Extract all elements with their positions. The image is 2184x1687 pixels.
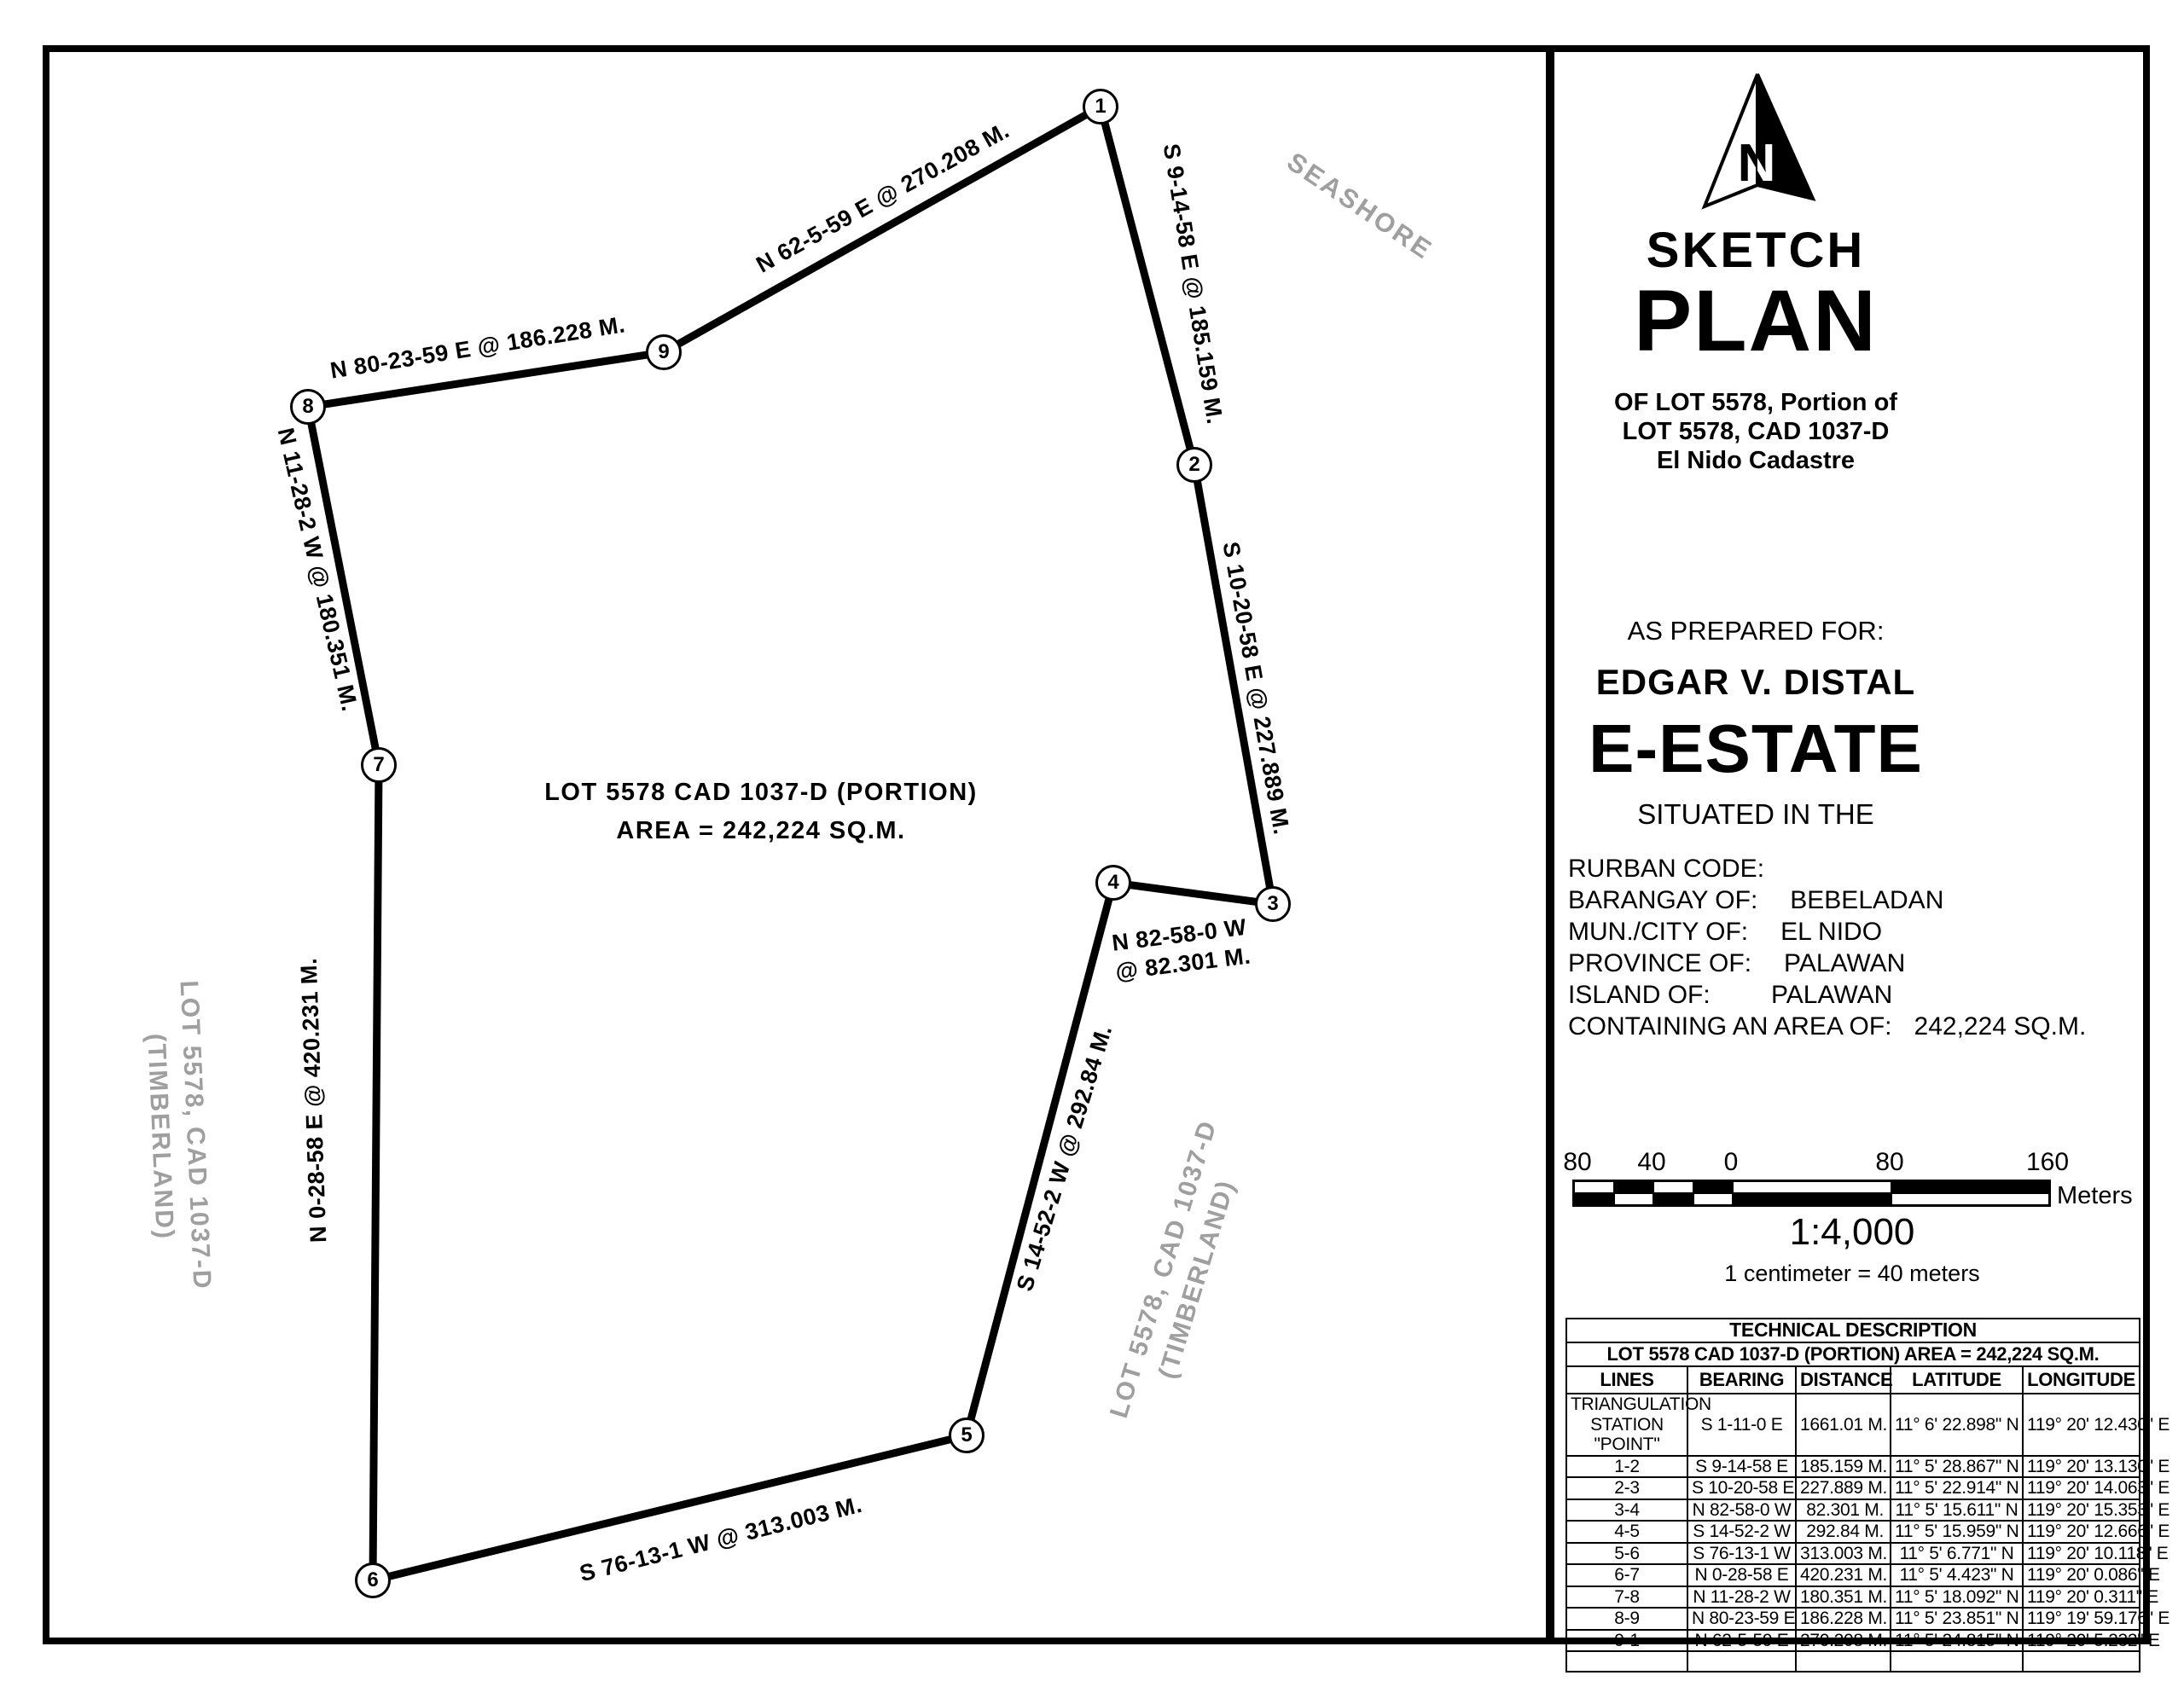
cell-bearing: N 11-28-2 W (1687, 1586, 1796, 1609)
table-row: 8-9 N 80-23-59 E 186.228 M. 11° 5' 23.85… (1566, 1608, 2140, 1630)
cell-lines: 1-2 (1566, 1456, 1687, 1478)
table-title: TECHNICAL DESCRIPTION (1566, 1319, 2140, 1342)
location-label: MUN./CITY OF: (1568, 916, 1748, 948)
location-label: PROVINCE OF: (1568, 948, 1751, 979)
subtitle-line1: OF LOT 5578, Portion of (1558, 388, 1954, 417)
cell-latitude: 11° 5' 22.914" N (1891, 1477, 2023, 1499)
cell-distance: 292.84 M. (1796, 1521, 1891, 1543)
cell-lines: 9-1 (1566, 1630, 1687, 1652)
table-row: TRIANGULATION STATION "POINT" S 1-11-0 E… (1566, 1394, 2140, 1456)
cell-distance: 227.889 M. (1796, 1477, 1891, 1499)
north-arrow-icon: N N (1699, 72, 1817, 217)
vertex-point: 5 (949, 1417, 985, 1453)
cell-latitude: 11° 5' 15.959" N (1891, 1521, 2023, 1543)
timberland-label-left: LOT 5578, CAD 1037-D (TIMBERLAND) (136, 980, 219, 1293)
cell-lines: TRIANGULATION STATION "POINT" (1566, 1394, 1687, 1456)
table-row: 1-2 S 9-14-58 E 185.159 M. 11° 5' 28.867… (1566, 1456, 2140, 1478)
cell-bearing: S 9-14-58 E (1687, 1456, 1796, 1478)
scale-unit-label: Meters (2057, 1182, 2133, 1210)
col-header-distance: DISTANCE (1796, 1366, 1891, 1394)
cell-distance: 180.351 M. (1796, 1586, 1891, 1609)
cell-lines: 8-9 (1566, 1608, 1687, 1630)
scale-tick: 80 (1875, 1148, 1903, 1177)
location-value: PALAWAN (1771, 979, 1892, 1011)
cell-bearing: N 62-5-59 E (1687, 1630, 1796, 1652)
parcel-area-label: LOT 5578 CAD 1037-D (PORTION) AREA = 242… (544, 774, 978, 850)
cell-latitude: 11° 5' 23.851" N (1891, 1608, 2023, 1630)
table-row (1566, 1651, 2140, 1672)
location-row-rurban: RURBAN CODE: (1568, 853, 2145, 884)
cell-bearing: S 10-20-58 E (1687, 1477, 1796, 1499)
location-value: BEBELADAN (1790, 884, 1943, 916)
table-row: 5-6 S 76-13-1 W 313.003 M. 11° 5' 6.771"… (1566, 1543, 2140, 1565)
cell-distance (1796, 1651, 1891, 1672)
scale-note: 1 centimeter = 40 meters (1565, 1261, 2139, 1287)
scale-bar-blocks (1572, 1180, 2051, 1207)
table-row: 3-4 N 82-58-0 W 82.301 M. 11° 5' 15.611"… (1566, 1499, 2140, 1522)
scale-tick: 0 (1724, 1148, 1739, 1177)
estate-name: E-ESTATE (1558, 710, 1954, 788)
cell-bearing: S 76-13-1 W (1687, 1543, 1796, 1565)
sketch-plan-page: 1 2 3 4 5 6 7 8 9 N 62-5-59 E @ 270.208 … (0, 0, 2184, 1687)
cell-lines: 3-4 (1566, 1499, 1687, 1522)
table-row: 9-1 N 62-5-59 E 270.208 M. 11° 5' 24.815… (1566, 1630, 2140, 1652)
location-row-area: CONTAINING AN AREA OF: 242,224 SQ.M. (1568, 1011, 2145, 1042)
location-value: 242,224 SQ.M. (1914, 1011, 2087, 1042)
vertex-point: 4 (1095, 865, 1131, 901)
cell-latitude: 11° 5' 4.423" N (1891, 1564, 2023, 1586)
subtitle-line3: El Nido Cadastre (1558, 446, 1954, 475)
table-subtitle: LOT 5578 CAD 1037-D (PORTION) AREA = 242… (1566, 1342, 2140, 1366)
location-row-island: ISLAND OF: PALAWAN (1568, 979, 2145, 1011)
cell-longitude: 119° 20' 13.130" E (2023, 1456, 2140, 1478)
cell-bearing: N 0-28-58 E (1687, 1564, 1796, 1586)
cell-distance: 420.231 M. (1796, 1564, 1891, 1586)
cell-latitude (1891, 1651, 2023, 1672)
table-row: 7-8 N 11-28-2 W 180.351 M. 11° 5' 18.092… (1566, 1586, 2140, 1609)
title-plan: PLAN (1558, 271, 1954, 371)
prepared-for-label: AS PREPARED FOR: (1558, 616, 1954, 646)
cell-lines: 5-6 (1566, 1543, 1687, 1565)
location-row-municipality: MUN./CITY OF: EL NIDO (1568, 916, 2145, 948)
location-row-province: PROVINCE OF: PALAWAN (1568, 948, 2145, 979)
cell-longitude: 119° 20' 0.311" E (2023, 1586, 2140, 1609)
col-header-latitude: LATITUDE (1891, 1366, 2023, 1394)
vertex-point: 1 (1083, 89, 1118, 125)
cell-latitude: 11° 5' 15.611" N (1891, 1499, 2023, 1522)
location-label: RURBAN CODE: (1568, 853, 1764, 884)
parcel-name: LOT 5578 CAD 1037-D (PORTION) (544, 774, 978, 812)
subtitle-line2: LOT 5578, CAD 1037-D (1558, 417, 1954, 446)
cell-longitude: 119° 20' 5.232" E (2023, 1630, 2140, 1652)
cell-longitude: 119° 20' 14.063" E (2023, 1477, 2140, 1499)
col-header-bearing: BEARING (1687, 1366, 1796, 1394)
cell-latitude: 11° 5' 28.867" N (1891, 1456, 2023, 1478)
location-value: EL NIDO (1780, 916, 1882, 948)
cell-distance: 82.301 M. (1796, 1499, 1891, 1522)
table-row: 6-7 N 0-28-58 E 420.231 M. 11° 5' 4.423"… (1566, 1564, 2140, 1586)
cell-longitude: 119° 20' 10.118" E (2023, 1543, 2140, 1565)
cell-lines: 4-5 (1566, 1521, 1687, 1543)
technical-description-table: TECHNICAL DESCRIPTION LOT 5578 CAD 1037-… (1565, 1318, 2140, 1673)
location-label: CONTAINING AN AREA OF: (1568, 1011, 1892, 1042)
situated-label: SITUATED IN THE (1558, 798, 1954, 831)
title-subtitle: OF LOT 5578, Portion of LOT 5578, CAD 10… (1558, 388, 1954, 476)
table-row: 4-5 S 14-52-2 W 292.84 M. 11° 5' 15.959"… (1566, 1521, 2140, 1543)
location-label: ISLAND OF: (1568, 979, 1739, 1011)
table-row: 2-3 S 10-20-58 E 227.889 M. 11° 5' 22.91… (1566, 1477, 2140, 1499)
cell-distance: 270.208 M. (1796, 1630, 1891, 1652)
col-header-lines: LINES (1566, 1366, 1687, 1394)
cell-lines: 7-8 (1566, 1586, 1687, 1609)
cell-lines: 6-7 (1566, 1564, 1687, 1586)
cell-latitude: 11° 5' 24.815" N (1891, 1630, 2023, 1652)
cell-longitude: 119° 20' 12.666" E (2023, 1521, 2140, 1543)
location-value: PALAWAN (1784, 948, 1905, 979)
location-row-barangay: BARANGAY OF: BEBELADAN (1568, 884, 2145, 916)
cell-bearing: N 82-58-0 W (1687, 1499, 1796, 1522)
cell-latitude: 11° 5' 6.771" N (1891, 1543, 2023, 1565)
cell-distance: 186.228 M. (1796, 1608, 1891, 1630)
cell-longitude: 119° 20' 12.430" E (2023, 1394, 2140, 1456)
location-block: RURBAN CODE: BARANGAY OF: BEBELADAN MUN.… (1568, 853, 2145, 1042)
scale-tick: 80 (1563, 1148, 1591, 1177)
vertex-point: 2 (1176, 447, 1212, 483)
parcel-area: AREA = 242,224 SQ.M. (544, 812, 978, 850)
cell-lines: 2-3 (1566, 1477, 1687, 1499)
vertex-point: 7 (361, 747, 397, 783)
cell-lines (1566, 1651, 1687, 1672)
cell-bearing: N 80-23-59 E (1687, 1608, 1796, 1630)
cell-longitude: 119° 19' 59.176" E (2023, 1608, 2140, 1630)
vertex-point: 8 (290, 389, 326, 425)
cell-bearing (1687, 1651, 1796, 1672)
cell-distance: 313.003 M. (1796, 1543, 1891, 1565)
vertex-point: 6 (355, 1562, 391, 1598)
cell-longitude: 119° 20' 0.086" E (2023, 1564, 2140, 1586)
scale-ratio: 1:4,000 (1565, 1211, 2139, 1254)
cell-latitude: 11° 5' 18.092" N (1891, 1586, 2023, 1609)
cell-longitude (2023, 1651, 2140, 1672)
cell-distance: 1661.01 M. (1796, 1394, 1891, 1456)
location-label: BARANGAY OF: (1568, 884, 1757, 916)
prepared-for-name: EDGAR V. DISTAL (1558, 662, 1954, 703)
scale-bar: 80 40 0 80 160 Meters (1572, 1148, 2152, 1216)
cell-latitude: 11° 6' 22.898" N (1891, 1394, 2023, 1456)
cell-distance: 185.159 M. (1796, 1456, 1891, 1478)
cell-bearing: S 14-52-2 W (1687, 1521, 1796, 1543)
vertex-point: 9 (646, 334, 682, 370)
scale-tick: 160 (2026, 1148, 2069, 1177)
col-header-longitude: LONGITUDE (2023, 1366, 2140, 1394)
vertex-point: 3 (1255, 886, 1291, 922)
cell-longitude: 119° 20' 15.353" E (2023, 1499, 2140, 1522)
title-sketch: SKETCH (1558, 222, 1954, 279)
scale-tick: 40 (1637, 1148, 1665, 1177)
